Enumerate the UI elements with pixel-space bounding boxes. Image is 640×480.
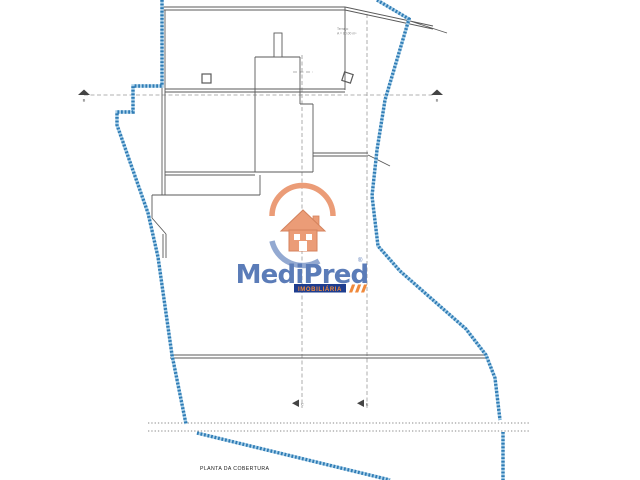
plan-annotation: Terraço A = 80.00 m² (337, 27, 357, 36)
plan-annotation-line2: A = 80.00 m² (337, 32, 357, 36)
section-marker-top-right-label: B (436, 98, 439, 103)
building-outline (152, 7, 486, 358)
section-marker-top-right: B (431, 90, 443, 103)
section-centerlines (84, 14, 433, 408)
section-marker-top-left-label: B (83, 98, 86, 103)
logo-trademark: ® (358, 257, 363, 264)
roof-plan-drawing: B B C E Terraço A = 80.00 m² MediPred ® … (0, 0, 640, 480)
roof-plan-page: B B C E Terraço A = 80.00 m² MediPred ® … (0, 0, 640, 480)
section-marker-top-left: B (78, 90, 90, 103)
section-marker-bottom-right-label: E (366, 403, 369, 407)
chimney-shape (274, 33, 282, 57)
section-marker-bottom-left-label: C (301, 403, 304, 407)
drawing-title: PLANTA DA COBERTURA (200, 466, 270, 472)
logo-tagline-text: IMOBILIÁRIA (298, 286, 342, 293)
roof-drain-right (342, 72, 353, 83)
roof-drain-left (202, 74, 211, 83)
logo-slashes (349, 285, 367, 293)
plan-annotation-line1: Terraço (337, 27, 348, 31)
logo-house-icon (281, 210, 325, 251)
dotted-reference-lines (148, 423, 530, 431)
